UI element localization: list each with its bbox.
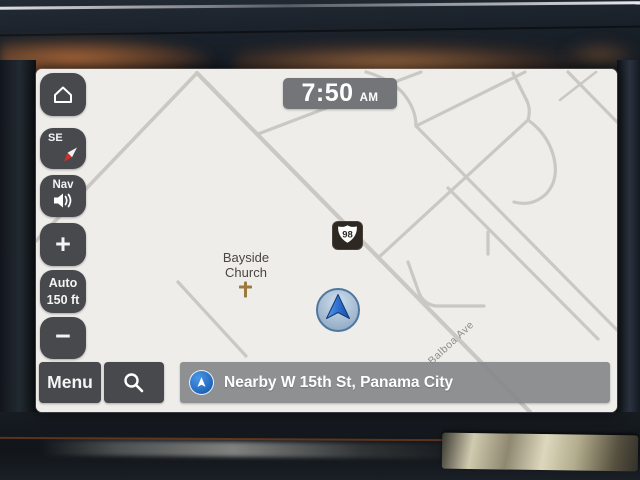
bezel-bottom — [0, 412, 640, 480]
bezel-left — [0, 60, 36, 420]
route-status-bar[interactable]: Nearby W 15th St, Panama City — [180, 362, 610, 403]
navigation-badge — [189, 370, 214, 395]
bezel-top — [0, 0, 640, 70]
nav-volume-label: Nav — [52, 179, 73, 192]
clock-meridiem: AM — [360, 92, 379, 104]
compass-needle-icon — [60, 144, 81, 165]
bezel-chrome-trim — [442, 433, 638, 472]
poi-label-line2: Church — [186, 265, 306, 280]
zoom-in-label: + — [55, 229, 71, 260]
map-canvas[interactable]: Balboa Ave — [36, 69, 617, 412]
clock-time: 7:50 — [302, 78, 354, 109]
home-button[interactable] — [40, 73, 86, 116]
search-button[interactable] — [104, 362, 164, 403]
search-icon — [122, 371, 146, 395]
bezel-glare-streak — [0, 1, 640, 10]
clock-display: 7:50 AM — [283, 78, 397, 109]
menu-button[interactable]: Menu — [39, 362, 101, 403]
menu-button-label: Menu — [47, 372, 93, 393]
zoom-auto-scale-button[interactable]: Auto 150 ft — [40, 270, 86, 313]
bezel-reflection — [40, 440, 470, 459]
zoom-auto-label: Auto — [49, 275, 77, 291]
zoom-out-button[interactable]: − — [40, 317, 86, 359]
compass-button[interactable]: SE — [40, 128, 86, 169]
route-shield-number: 98 — [342, 230, 353, 241]
bezel-seam — [0, 26, 640, 37]
zoom-out-label: − — [55, 321, 71, 352]
vehicle-position-marker — [315, 287, 361, 333]
infotainment-screen: Balboa Ave Bayside Church 98 — [36, 69, 617, 412]
nav-volume-button[interactable]: Nav — [40, 175, 86, 217]
poi-label-bayside-church: Bayside Church — [186, 250, 306, 280]
zoom-scale-label: 150 ft — [47, 292, 80, 308]
navigation-arrow-icon — [194, 375, 209, 390]
compass-heading-label: SE — [48, 132, 63, 144]
home-icon — [51, 84, 75, 106]
speaker-icon — [52, 192, 75, 209]
church-cross-icon — [238, 281, 253, 298]
route-98-shield: 98 — [332, 221, 363, 250]
zoom-in-button[interactable]: + — [40, 223, 86, 266]
poi-label-line1: Bayside — [186, 250, 306, 265]
status-text: Nearby W 15th St, Panama City — [224, 374, 453, 392]
bezel-right — [617, 60, 640, 420]
